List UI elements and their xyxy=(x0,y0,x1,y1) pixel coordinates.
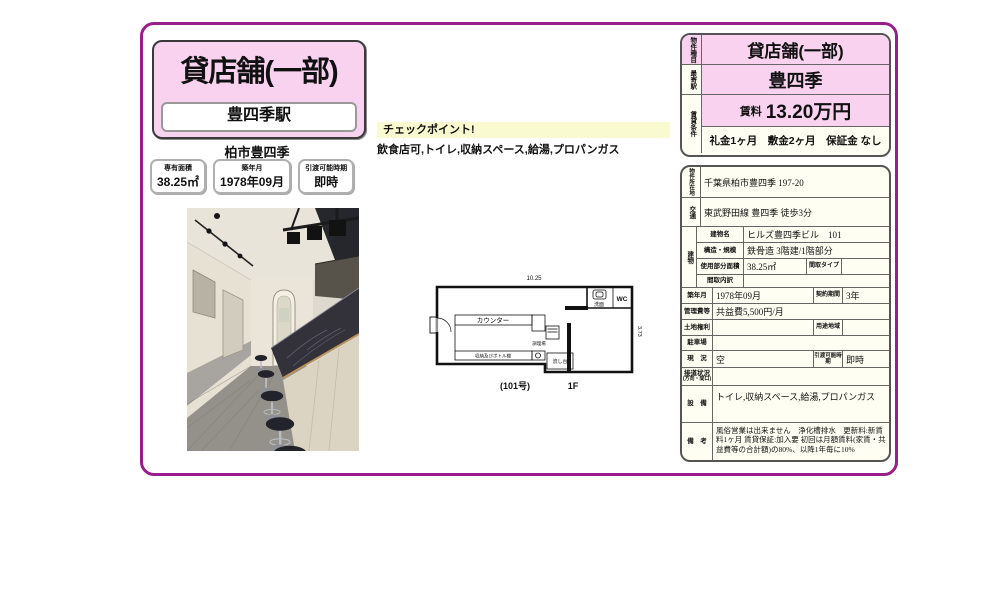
parking-label: 駐車場 xyxy=(682,336,713,350)
stat-area-label: 専有面積 xyxy=(157,163,199,173)
building-name-label: 建物名 xyxy=(697,227,744,242)
parking-value xyxy=(713,336,889,350)
road-value xyxy=(713,368,889,385)
summary-type-label: 物件種目 xyxy=(682,35,702,65)
layout-type-value xyxy=(842,259,889,274)
checkpoint-text: 飲食店可,トイレ,収納スペース,給湯,プロパンガス xyxy=(377,141,677,157)
land-value xyxy=(713,320,813,335)
building-name-value: ヒルズ豊四季ビル 101 xyxy=(744,227,889,242)
contract-label: 契約期間 xyxy=(813,288,843,303)
layout-detail-label: 間取内訳 xyxy=(697,275,744,287)
building-label: 建物 xyxy=(682,227,697,287)
area-value: 38.25㎡ xyxy=(744,259,806,274)
handover-value: 即時 xyxy=(843,351,889,367)
access-label: 交通 xyxy=(682,198,701,226)
floorplan-washroom-label: 洗面 xyxy=(594,301,604,308)
stat-handover: 引渡可能時期 即時 xyxy=(298,159,354,194)
mgmt-value: 共益費5,500円/月 xyxy=(713,304,889,319)
stat-handover-label: 引渡可能時期 xyxy=(305,163,347,173)
contract-value: 3年 xyxy=(843,288,889,303)
structure-label: 構造・規模 xyxy=(697,243,744,258)
structure-value: 鉄骨造 3階建/1階部分 xyxy=(744,243,889,258)
floorplan-counter-label: カウンター xyxy=(477,316,510,325)
floorplan-storage-label: 収納及びボトル棚 xyxy=(475,353,511,360)
floorplan-floor-label: 1F xyxy=(568,381,579,391)
stats-row: 専有面積 38.25㎡ 築年月 1978年09月 引渡可能時期 即時 xyxy=(150,159,372,194)
floorplan-sink-label: 流し台 xyxy=(552,358,567,365)
floorplan-depth-dim: 3.73 xyxy=(636,326,642,337)
remarks-value: 風俗営業は出来ません 浄化槽排水 更新料:新賃料1ヶ月 賃貸保証:加入要 初回は… xyxy=(713,423,889,460)
interior-photo xyxy=(187,208,359,451)
stat-area: 専有面積 38.25㎡ xyxy=(150,159,206,194)
road-label-line2: (方向・間口) xyxy=(683,377,711,383)
rent-value: 13.20万円 xyxy=(766,97,852,124)
summary-station-label: 最寄駅 xyxy=(682,65,702,95)
zoning-label: 用途地域 xyxy=(813,320,843,335)
floorplan-unit-label: (101号) xyxy=(500,381,530,391)
detail-table: 物件所在地 千葉県柏市豊四季 197-20 交通 東武野田線 豊四季 徒歩3分 … xyxy=(680,165,891,462)
checkpoint-title: チェックポイント! xyxy=(377,122,670,138)
built-value: 1978年09月 xyxy=(713,288,813,303)
floorplan-width-dim: 10.25 xyxy=(526,276,542,282)
summary-station-value: 豊四季 xyxy=(702,65,889,95)
rent-label: 賃料 xyxy=(740,103,762,119)
address-label: 物件所在地 xyxy=(682,167,701,197)
road-label: 接道状況 (方向・間口) xyxy=(682,368,713,385)
layout-type-label: 間取タイプ xyxy=(806,259,842,274)
floor-plan: 10.25 洗面 WC xyxy=(427,271,642,399)
summary-fees: 礼金1ヶ月 敷金2ヶ月 保証金 なし xyxy=(702,127,889,153)
remarks-label: 備 考 xyxy=(682,423,713,460)
land-label: 土地権利 xyxy=(682,320,713,335)
summary-terms-label: 賃貸条件 xyxy=(682,95,702,153)
access-value: 東武野田線 豊四季 徒歩3分 xyxy=(701,198,889,226)
equip-label: 設 備 xyxy=(682,386,713,422)
summary-table: 物件種目 貸店舗(一部) 最寄駅 豊四季 賃貸条件 賃料 13.20万円 礼金1… xyxy=(680,33,891,157)
stat-built-label: 築年月 xyxy=(220,163,284,173)
stat-area-value: 38.25㎡ xyxy=(157,173,199,190)
layout-detail-value xyxy=(744,275,889,287)
floorplan-wc-label: WC xyxy=(617,296,628,303)
built-label: 築年月 xyxy=(682,288,713,303)
mgmt-label: 管理費等 xyxy=(682,304,713,319)
stat-built: 築年月 1978年09月 xyxy=(213,159,291,194)
status-label: 現 況 xyxy=(682,351,713,367)
floorplan-kitchen-label: 調理場 xyxy=(532,340,546,347)
handover-label: 引渡可能時期 xyxy=(813,351,843,367)
stat-handover-value: 即時 xyxy=(305,173,347,190)
summary-type-value: 貸店舗(一部) xyxy=(702,35,889,65)
summary-rent-row: 賃料 13.20万円 xyxy=(702,95,889,127)
stat-built-value: 1978年09月 xyxy=(220,173,284,190)
property-type-title: 貸店舗(一部) xyxy=(154,42,364,102)
flyer-page: 貸店舗(一部) 豊四季駅 柏市豊四季 専有面積 38.25㎡ 築年月 1978年… xyxy=(0,0,1000,600)
property-type-box: 貸店舗(一部) 豊四季駅 xyxy=(152,40,366,139)
area-label: 使用部分面積 xyxy=(697,259,744,274)
flyer-sheet: 貸店舗(一部) 豊四季駅 柏市豊四季 専有面積 38.25㎡ 築年月 1978年… xyxy=(140,22,898,476)
equip-value: トイレ,収納スペース,給湯,プロパンガス xyxy=(713,386,889,422)
status-value: 空 xyxy=(713,351,813,367)
zoning-value xyxy=(843,320,889,335)
address-value: 千葉県柏市豊四季 197-20 xyxy=(701,167,889,197)
station-name-box: 豊四季駅 xyxy=(161,102,357,132)
